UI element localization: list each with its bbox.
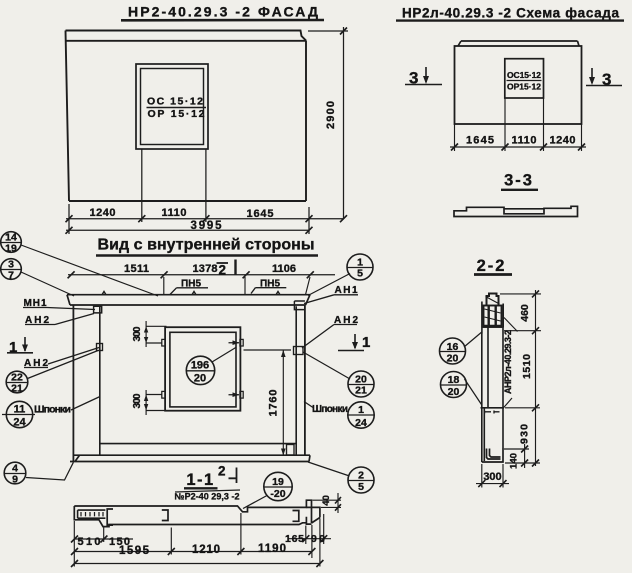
svg-text:1106: 1106 [272, 263, 296, 275]
svg-text:19: 19 [5, 243, 17, 255]
svg-text:1760: 1760 [268, 390, 280, 417]
svg-text:19: 19 [272, 476, 284, 488]
svg-text:НР2л-40.29.3 -2 Схема фасада: НР2л-40.29.3 -2 Схема фасада [402, 6, 620, 21]
svg-text:-20: -20 [270, 488, 285, 500]
svg-text:2900: 2900 [325, 101, 337, 129]
svg-text:5: 5 [358, 481, 364, 493]
svg-text:НР2-40.29.3 -2 ФАСАД: НР2-40.29.3 -2 ФАСАД [128, 4, 320, 20]
svg-text:196: 196 [191, 360, 209, 372]
svg-text:20: 20 [194, 373, 206, 385]
svg-text:2: 2 [218, 464, 226, 479]
svg-text:9: 9 [12, 474, 18, 486]
svg-text:1: 1 [358, 404, 364, 416]
svg-text:ОР 15·12: ОР 15·12 [148, 108, 205, 120]
svg-text:24: 24 [355, 417, 367, 429]
svg-text:140: 140 [509, 453, 520, 469]
svg-text:2-2: 2-2 [477, 257, 507, 275]
svg-text:ОС 15·12: ОС 15·12 [147, 96, 203, 108]
svg-text:АНР2л-40.29.3-2: АНР2л-40.29.3-2 [503, 330, 513, 394]
svg-text:Вид с внутренней стороны: Вид с внутренней стороны [98, 237, 317, 254]
svg-text:1190: 1190 [258, 543, 286, 555]
svg-text:165: 165 [285, 533, 304, 545]
svg-text:1378: 1378 [193, 263, 218, 275]
svg-text:1: 1 [362, 334, 370, 351]
svg-text:ОС15·12: ОС15·12 [507, 70, 541, 80]
svg-text:1110: 1110 [162, 207, 187, 219]
svg-text:300: 300 [483, 471, 501, 483]
svg-text:1-1: 1-1 [186, 471, 214, 489]
svg-text:Шпонки: Шпонки [312, 404, 348, 415]
svg-text:300: 300 [132, 393, 143, 408]
svg-text:20: 20 [448, 386, 460, 398]
svg-text:7: 7 [8, 270, 14, 282]
svg-text:1645: 1645 [247, 208, 274, 220]
svg-text:24: 24 [13, 417, 26, 429]
svg-text:510: 510 [78, 536, 101, 548]
svg-text:300: 300 [132, 326, 143, 341]
svg-text:1510: 1510 [521, 354, 533, 379]
svg-text:3-3: 3-3 [504, 172, 534, 190]
svg-text:930: 930 [519, 424, 531, 444]
svg-text:16: 16 [447, 341, 459, 353]
svg-text:11: 11 [14, 404, 26, 416]
svg-text:18: 18 [448, 374, 460, 386]
svg-text:3995: 3995 [191, 220, 223, 232]
svg-text:20: 20 [447, 353, 459, 365]
svg-text:2: 2 [219, 263, 227, 278]
svg-text:40: 40 [321, 495, 332, 506]
svg-text:1595: 1595 [119, 545, 150, 557]
svg-text:2: 2 [358, 470, 364, 482]
svg-text:21: 21 [355, 385, 367, 397]
svg-text:1240: 1240 [550, 135, 576, 147]
svg-text:1511: 1511 [124, 263, 149, 275]
svg-text:1110: 1110 [512, 135, 537, 147]
svg-text:1645: 1645 [466, 135, 494, 147]
svg-text:1210: 1210 [192, 544, 220, 556]
svg-text:21: 21 [11, 383, 23, 395]
svg-text:460: 460 [519, 304, 531, 322]
svg-text:ОР15·12: ОР15·12 [507, 82, 541, 92]
svg-text:Шпонки: Шпонки [34, 404, 71, 416]
svg-text:1240: 1240 [90, 207, 116, 219]
svg-text:5: 5 [357, 268, 363, 280]
svg-text:№Р2-40 29,3 -2: №Р2-40 29,3 -2 [175, 492, 240, 502]
